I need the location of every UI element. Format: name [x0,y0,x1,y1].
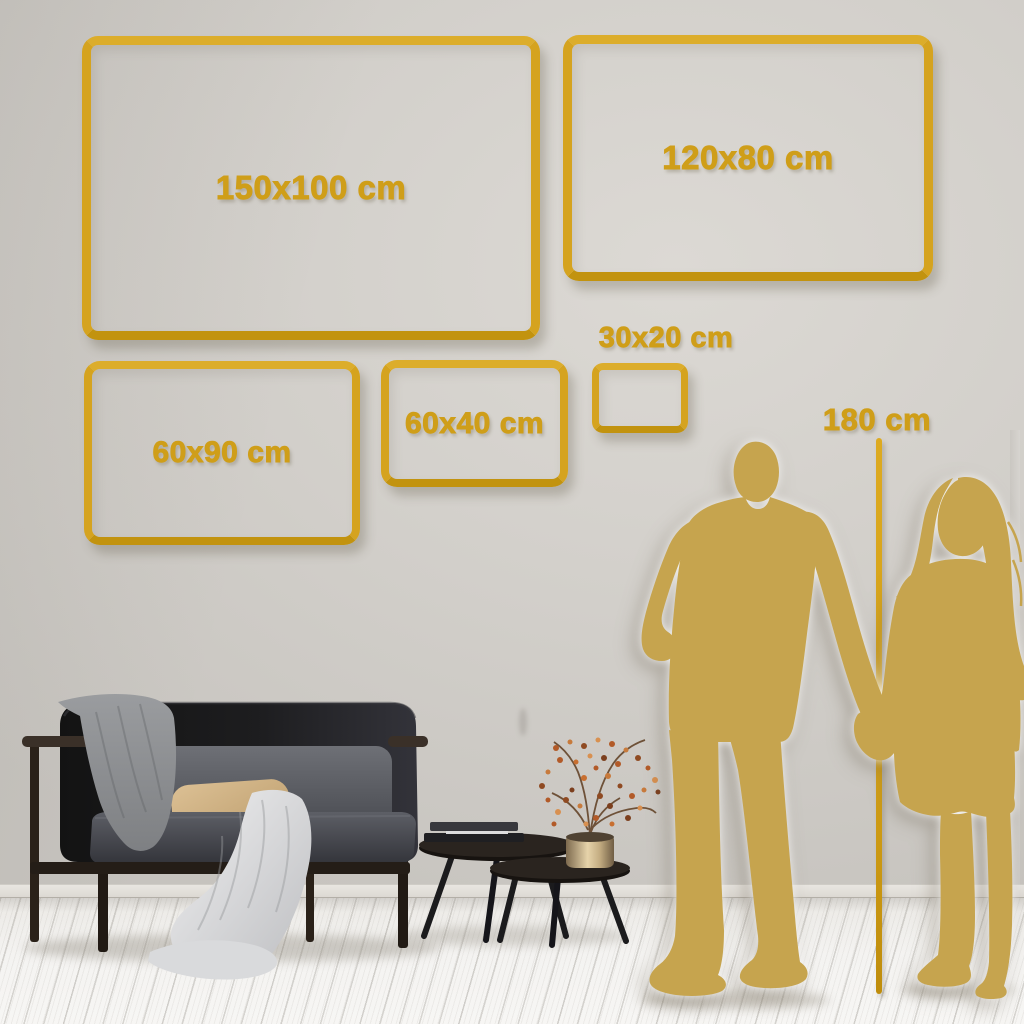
joined-hands [854,710,901,761]
couple-silhouette [642,442,1024,999]
room-scene [0,0,1024,1024]
man-silhouette [642,442,890,996]
blossoms [539,738,661,827]
sofa [22,694,428,979]
size-guide-scene: 150x100 cm 120x80 cm 60x90 cm 60x40 cm 3… [0,0,1024,1024]
wall-smudge [519,708,527,736]
books [424,822,524,842]
